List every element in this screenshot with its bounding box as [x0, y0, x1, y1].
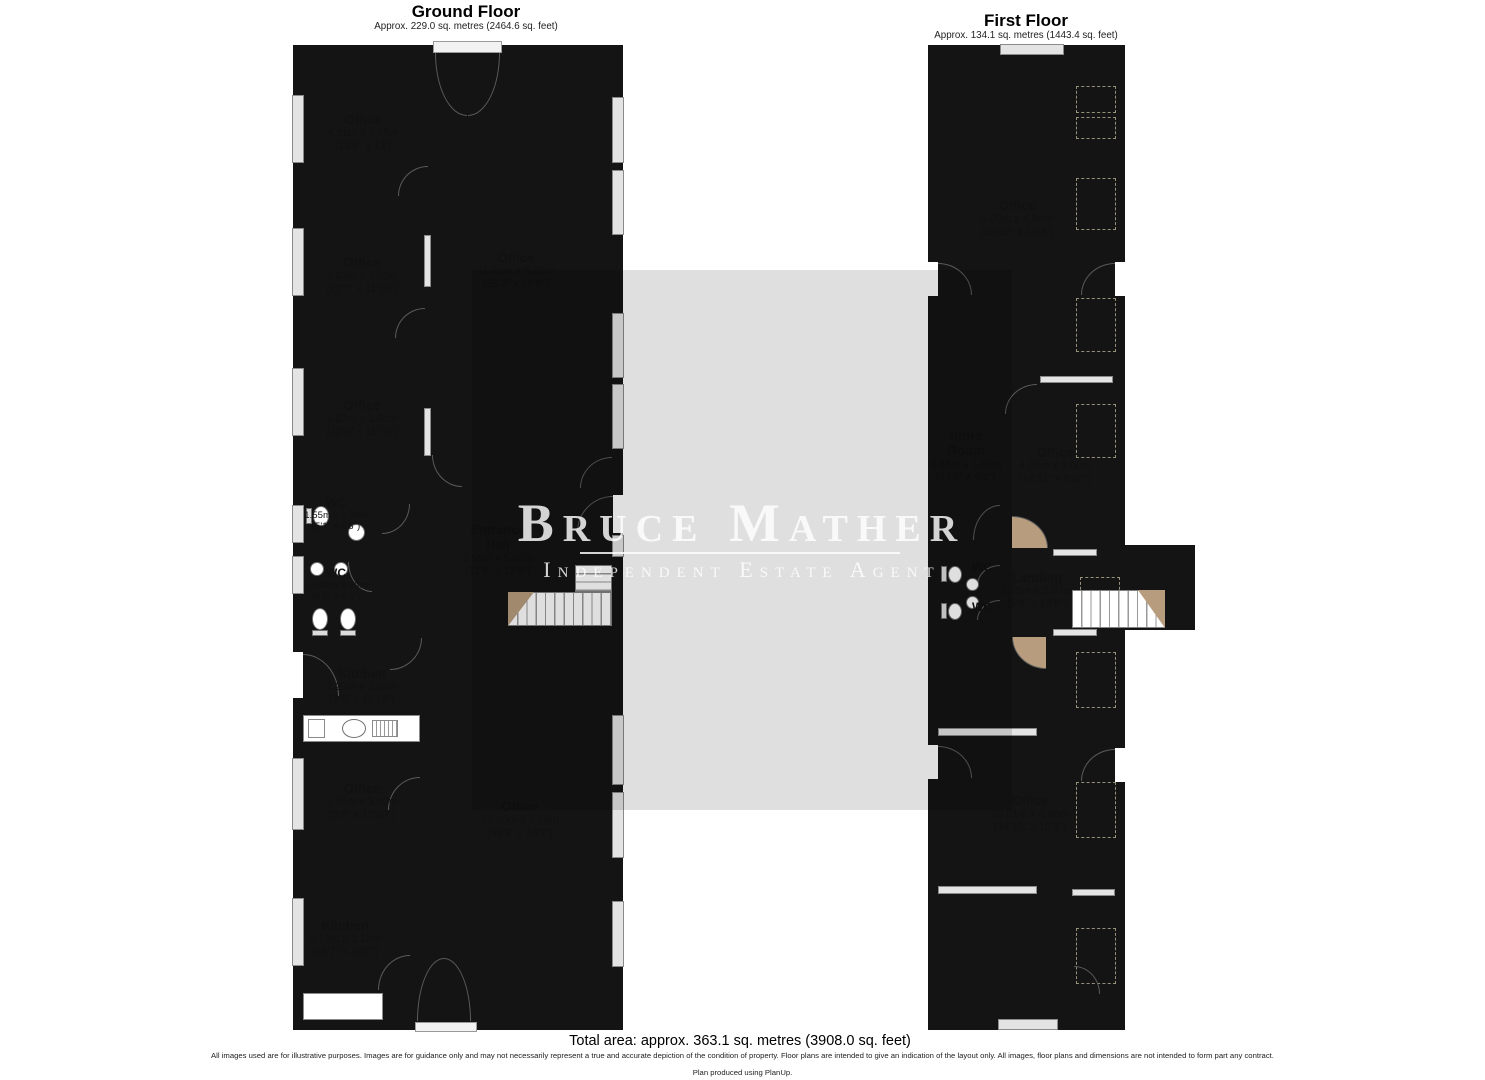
room-label: Office 4.11m x 3.65m (13'6" x 12')	[328, 112, 399, 153]
wall	[303, 338, 395, 347]
room-label: Office 3.82m x 3.60m (12'6" x 11'10")	[326, 398, 398, 439]
watermark-divider	[580, 552, 900, 554]
window	[1000, 44, 1064, 55]
wall	[420, 810, 430, 950]
first-floor-title: First Floor	[984, 11, 1068, 31]
room-label: WC 1.55m x 1.99m (5'1" x 6'6")	[304, 496, 367, 533]
room-label: Office 3.83m x 3.60m (12'7" x 11'10")	[326, 255, 398, 296]
window	[292, 758, 304, 830]
watermark-tagline: Independent Estate Agent	[472, 557, 1012, 583]
window	[612, 97, 624, 163]
wall	[303, 196, 398, 205]
wall	[372, 534, 382, 562]
wall	[303, 858, 420, 866]
wall	[303, 549, 382, 558]
window	[424, 408, 431, 456]
glazed-partition	[938, 886, 1037, 894]
watermark-brand: Bruce Mather	[472, 492, 1012, 554]
rooflight-outline	[1076, 782, 1116, 838]
disclaimer-text: All images used are for illustrative pur…	[130, 1051, 1355, 1061]
window	[292, 898, 304, 966]
glazed-partition	[1072, 889, 1115, 896]
toilet-icon	[340, 630, 356, 636]
window	[292, 505, 304, 543]
total-area-text: Total area: approx. 363.1 sq. metres (39…	[569, 1033, 911, 1049]
floorplan-page: Ground Floor Approx. 229.0 sq. metres (2…	[0, 0, 1485, 1080]
rooflight-outline	[1076, 298, 1116, 352]
rooflight-outline	[1076, 117, 1116, 139]
door-opening	[293, 652, 303, 698]
toilet-icon	[340, 608, 356, 630]
wall	[303, 745, 420, 753]
window	[292, 556, 304, 594]
door-opening	[1115, 262, 1125, 296]
toilet-icon	[312, 630, 328, 636]
window	[612, 170, 624, 235]
ground-floor-subtitle: Approx. 229.0 sq. metres (2464.6 sq. fee…	[374, 21, 558, 32]
window	[1040, 376, 1113, 383]
window	[612, 901, 624, 967]
room-label: Office 9.09m x 4.96m (29'10" x 16'3")	[981, 198, 1053, 239]
produced-by-text: Plan produced using PlanUp.	[130, 1068, 1355, 1078]
first-floor-subtitle: Approx. 134.1 sq. metres (1443.4 sq. fee…	[934, 30, 1118, 41]
ground-floor-title: Ground Floor	[412, 2, 521, 22]
room-label: Landing 1.75m x 5.07m (5'9" x 16'8")	[1001, 570, 1072, 611]
room-label: Kitchen 4.14m x 3.18m (13'7" x 10'5")	[309, 918, 380, 959]
window	[1053, 549, 1097, 556]
wall	[372, 492, 382, 504]
window	[292, 95, 304, 163]
wall	[1068, 994, 1074, 1002]
wall	[372, 592, 382, 648]
window	[424, 235, 431, 287]
room-label: Office 4.54m x 3.00m (14'11" x 9'10")	[1019, 445, 1091, 486]
toilet-icon	[312, 608, 328, 630]
room-label: Kitchen 2.27m x 3.60m (7'5" x 11'10")	[326, 666, 397, 707]
wall	[420, 638, 430, 777]
door-threshold	[433, 41, 502, 53]
rooflight-outline	[1076, 178, 1116, 230]
window	[1053, 629, 1097, 636]
room-label: WC 2.64m x 1.99m (8'8" x 6'6")	[304, 566, 367, 603]
window	[998, 1019, 1058, 1030]
kitchen-counter	[303, 993, 383, 1020]
wall	[1098, 994, 1115, 1002]
window	[292, 368, 304, 436]
rooflight-outline	[1076, 86, 1116, 113]
rooflight-outline	[1076, 652, 1116, 708]
drainer-icon	[372, 720, 398, 737]
door-opening	[1115, 748, 1125, 782]
sink-icon	[342, 719, 366, 738]
room-label: Office 2.95m x 3.60m (9'8" x 11'10")	[326, 781, 397, 822]
door-threshold	[415, 1022, 477, 1032]
wall	[1060, 996, 1068, 1020]
appliance-icon	[308, 719, 325, 738]
window	[292, 228, 304, 296]
